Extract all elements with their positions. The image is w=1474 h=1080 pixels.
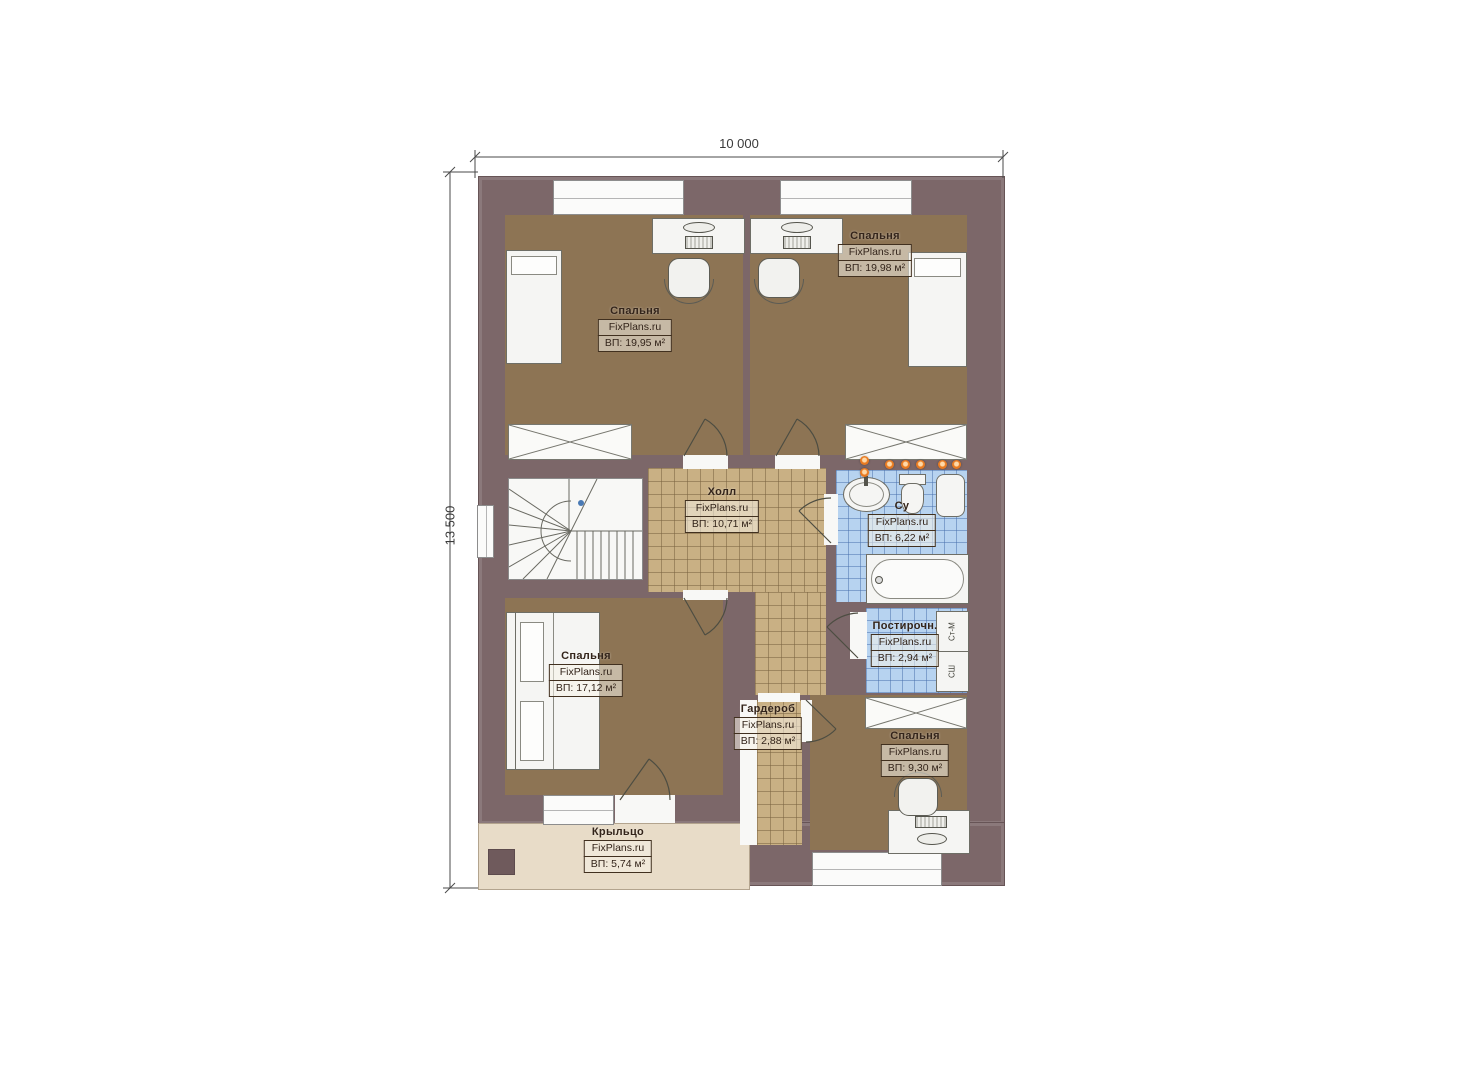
bathtub-inner	[871, 559, 964, 599]
watermark: FixPlans.ru	[881, 744, 949, 761]
desk-top-left	[652, 218, 745, 254]
dimension-height-label: 13 500	[443, 426, 458, 626]
room-name: Крыльцо	[584, 826, 652, 838]
watermark: FixPlans.ru	[868, 514, 936, 531]
door-opening-bathroom	[824, 494, 838, 545]
desk-lamp-icon	[917, 833, 947, 845]
bathtub-drain-icon	[875, 576, 883, 584]
label-porch: Крыльцо FixPlans.ru ВП: 5,74 м²	[584, 826, 652, 873]
room-area: ВП: 6,22 м²	[868, 530, 936, 547]
closet-bedroom-bottom-right	[865, 697, 967, 729]
door-opening-bedroom-bottom-right	[801, 700, 812, 742]
room-name: Холл	[685, 486, 759, 498]
desk-bottom-right	[888, 810, 970, 854]
stair-level-marker	[578, 500, 584, 506]
dryer-label: СШ	[937, 652, 968, 691]
door-opening-bedroom-top-left	[683, 455, 728, 469]
room-name: Гардероб	[734, 703, 802, 715]
window-stairs	[477, 505, 494, 558]
label-bedroom-bottom-right: Спальня FixPlans.ru ВП: 9,30 м²	[881, 730, 949, 777]
window-bottom-left	[543, 795, 614, 825]
pillow	[520, 622, 544, 682]
label-bedroom-top-right: Спальня FixPlans.ru ВП: 19,98 м²	[838, 230, 912, 277]
spot-light-icon	[885, 460, 894, 469]
chair-top-right	[758, 258, 800, 298]
spot-light-icon	[860, 468, 869, 477]
door-opening-laundry	[850, 612, 867, 659]
watermark: FixPlans.ru	[584, 840, 652, 857]
spot-light-icon	[938, 460, 947, 469]
spot-light-icon	[916, 460, 925, 469]
room-area: ВП: 19,95 м²	[598, 335, 672, 352]
label-bathroom: Су FixPlans.ru ВП: 6,22 м²	[868, 500, 936, 547]
staircase	[508, 478, 643, 580]
window-top-left	[553, 180, 684, 215]
room-name: Спальня	[838, 230, 912, 242]
watermark: FixPlans.ru	[685, 500, 759, 517]
bed-single-top-left	[506, 250, 562, 364]
room-area: ВП: 9,30 м²	[881, 760, 949, 777]
desk-top-right	[750, 218, 843, 254]
bathtub	[866, 554, 969, 604]
window-top-right	[780, 180, 912, 215]
room-name: Су	[868, 500, 936, 512]
sink-faucet-icon	[864, 476, 868, 486]
room-name: Спальня	[598, 305, 672, 317]
pillow	[511, 256, 557, 275]
closet-bedroom-top-left	[508, 424, 632, 460]
door-opening-bedroom-top-right	[775, 455, 820, 469]
desk-keyboard-icon	[783, 236, 811, 249]
label-hall: Холл FixPlans.ru ВП: 10,71 м²	[685, 486, 759, 533]
watermark: FixPlans.ru	[598, 319, 672, 336]
floor-plan-canvas: Ст-М СШ 10 000 13 500 Спальня FixPlans.r…	[0, 0, 1474, 1080]
bidet	[936, 474, 965, 517]
spot-light-icon	[952, 460, 961, 469]
label-bedroom-bottom-left: Спальня FixPlans.ru ВП: 17,12 м²	[549, 650, 623, 697]
label-wardrobe: Гардероб FixPlans.ru ВП: 2,88 м²	[734, 703, 802, 750]
watermark: FixPlans.ru	[734, 717, 802, 734]
dimension-width-label: 10 000	[639, 136, 839, 151]
desk-lamp-icon	[683, 222, 715, 233]
chair-bottom-right	[898, 778, 938, 816]
headboard	[507, 613, 516, 769]
desk-keyboard-icon	[915, 816, 947, 828]
label-bedroom-top-left: Спальня FixPlans.ru ВП: 19,95 м²	[598, 305, 672, 352]
room-area: ВП: 5,74 м²	[584, 856, 652, 873]
staircase-drawing	[509, 479, 642, 579]
washing-machine-label: Ст-М	[937, 612, 968, 651]
door-opening-bedroom-bottom-left	[683, 590, 728, 600]
spot-light-icon	[860, 456, 869, 465]
room-area: ВП: 19,98 м²	[838, 260, 912, 277]
desk-lamp-icon	[781, 222, 813, 233]
closet-bedroom-top-right	[845, 424, 967, 460]
watermark: FixPlans.ru	[871, 634, 939, 651]
watermark: FixPlans.ru	[838, 244, 912, 261]
label-laundry: Постирочн. FixPlans.ru ВП: 2,94 м²	[871, 620, 939, 667]
chair-top-left	[668, 258, 710, 298]
bed-single-top-right	[908, 252, 967, 367]
room-area: ВП: 17,12 м²	[549, 680, 623, 697]
room-area: ВП: 10,71 м²	[685, 516, 759, 533]
spot-light-icon	[901, 460, 910, 469]
room-area: ВП: 2,88 м²	[734, 733, 802, 750]
wardrobe-opening	[758, 693, 800, 702]
corridor	[755, 592, 826, 695]
porch-post	[488, 849, 515, 875]
window-bottom-right	[812, 852, 942, 886]
room-name: Спальня	[881, 730, 949, 742]
room-name: Постирочн.	[871, 620, 939, 632]
entrance-door-opening	[615, 795, 675, 823]
room-area: ВП: 2,94 м²	[871, 650, 939, 667]
watermark: FixPlans.ru	[549, 664, 623, 681]
desk-keyboard-icon	[685, 236, 713, 249]
room-name: Спальня	[549, 650, 623, 662]
dryer: СШ	[936, 651, 969, 692]
pillow	[914, 258, 961, 277]
washing-machine: Ст-М	[936, 611, 969, 652]
pillow	[520, 701, 544, 761]
